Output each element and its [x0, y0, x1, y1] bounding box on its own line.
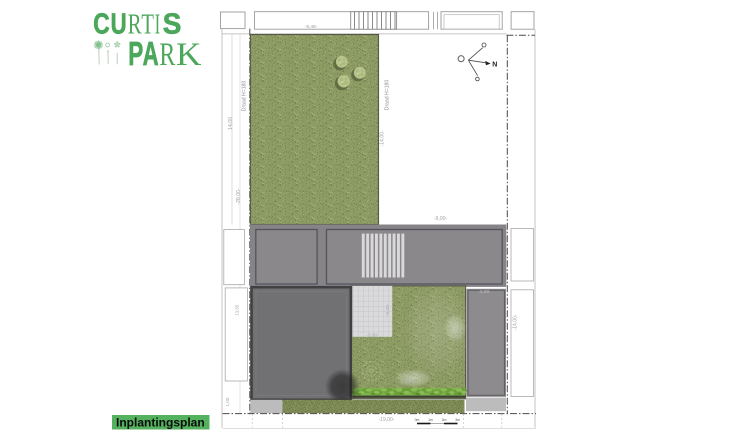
- svg-text:-0,42: -0,42: [403, 379, 414, 384]
- svg-text:0m: 0m: [415, 418, 420, 422]
- svg-text:14,00: 14,00: [228, 117, 234, 130]
- svg-text:-28,00-: -28,00-: [236, 188, 242, 205]
- svg-text:1m: 1m: [428, 418, 433, 422]
- svg-text:-3,00-: -3,00-: [366, 333, 379, 339]
- svg-text:-19,00-: -19,00-: [379, 417, 395, 423]
- svg-text:A: A: [143, 35, 159, 72]
- svg-text:-14,00-: -14,00-: [379, 130, 385, 147]
- svg-text:1,00: 1,00: [225, 397, 230, 406]
- svg-text:-14,00-: -14,00-: [513, 314, 519, 330]
- svg-text:P: P: [128, 35, 143, 72]
- svg-text:-3,00-: -3,00-: [478, 289, 491, 295]
- svg-text:13,85: 13,85: [235, 304, 240, 316]
- svg-text:C: C: [93, 8, 109, 40]
- svg-text:+0,39: +0,39: [457, 328, 462, 340]
- svg-text:Draad H=180: Draad H=180: [241, 81, 247, 112]
- svg-text:R: R: [159, 37, 175, 73]
- svg-text:U: U: [111, 8, 127, 40]
- svg-text:-9,49-: -9,49-: [305, 24, 318, 30]
- svg-text:3m: 3m: [455, 418, 460, 422]
- svg-text:2m: 2m: [442, 418, 447, 422]
- svg-text:N: N: [492, 62, 497, 69]
- svg-text:K: K: [176, 37, 202, 73]
- svg-text:-9,00-: -9,00-: [434, 216, 448, 222]
- svg-text:S: S: [163, 8, 182, 40]
- svg-text:Inplantingsplan: Inplantingsplan: [116, 415, 205, 429]
- svg-text:Draad H=180: Draad H=180: [385, 80, 391, 111]
- svg-text:-9,00-: -9,00-: [385, 303, 391, 316]
